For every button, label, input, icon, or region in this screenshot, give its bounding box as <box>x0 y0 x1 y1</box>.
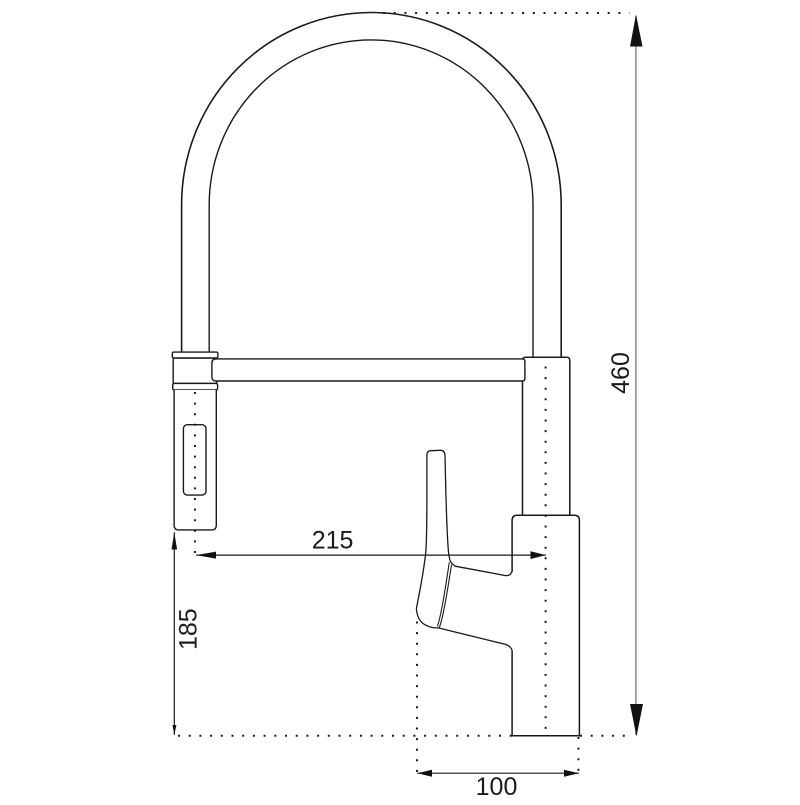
svg-text:460: 460 <box>607 352 635 394</box>
svg-text:185: 185 <box>175 608 203 650</box>
svg-text:100: 100 <box>476 773 518 800</box>
svg-text:215: 215 <box>312 527 354 555</box>
